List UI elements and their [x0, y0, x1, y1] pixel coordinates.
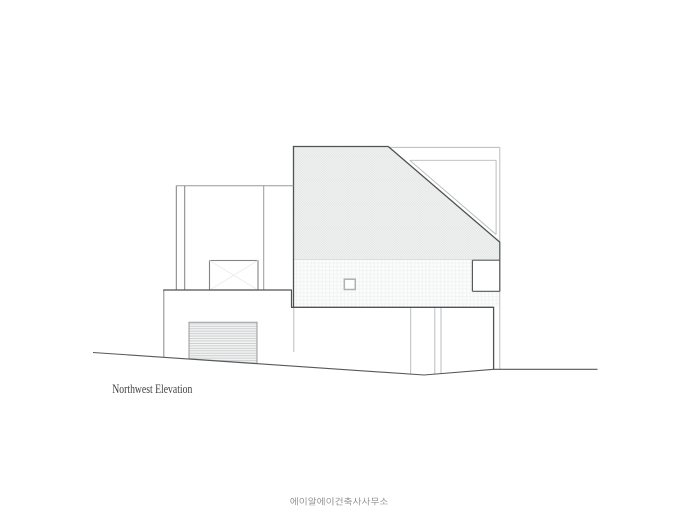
svg-text:Northwest Elevation: Northwest Elevation: [112, 381, 192, 396]
